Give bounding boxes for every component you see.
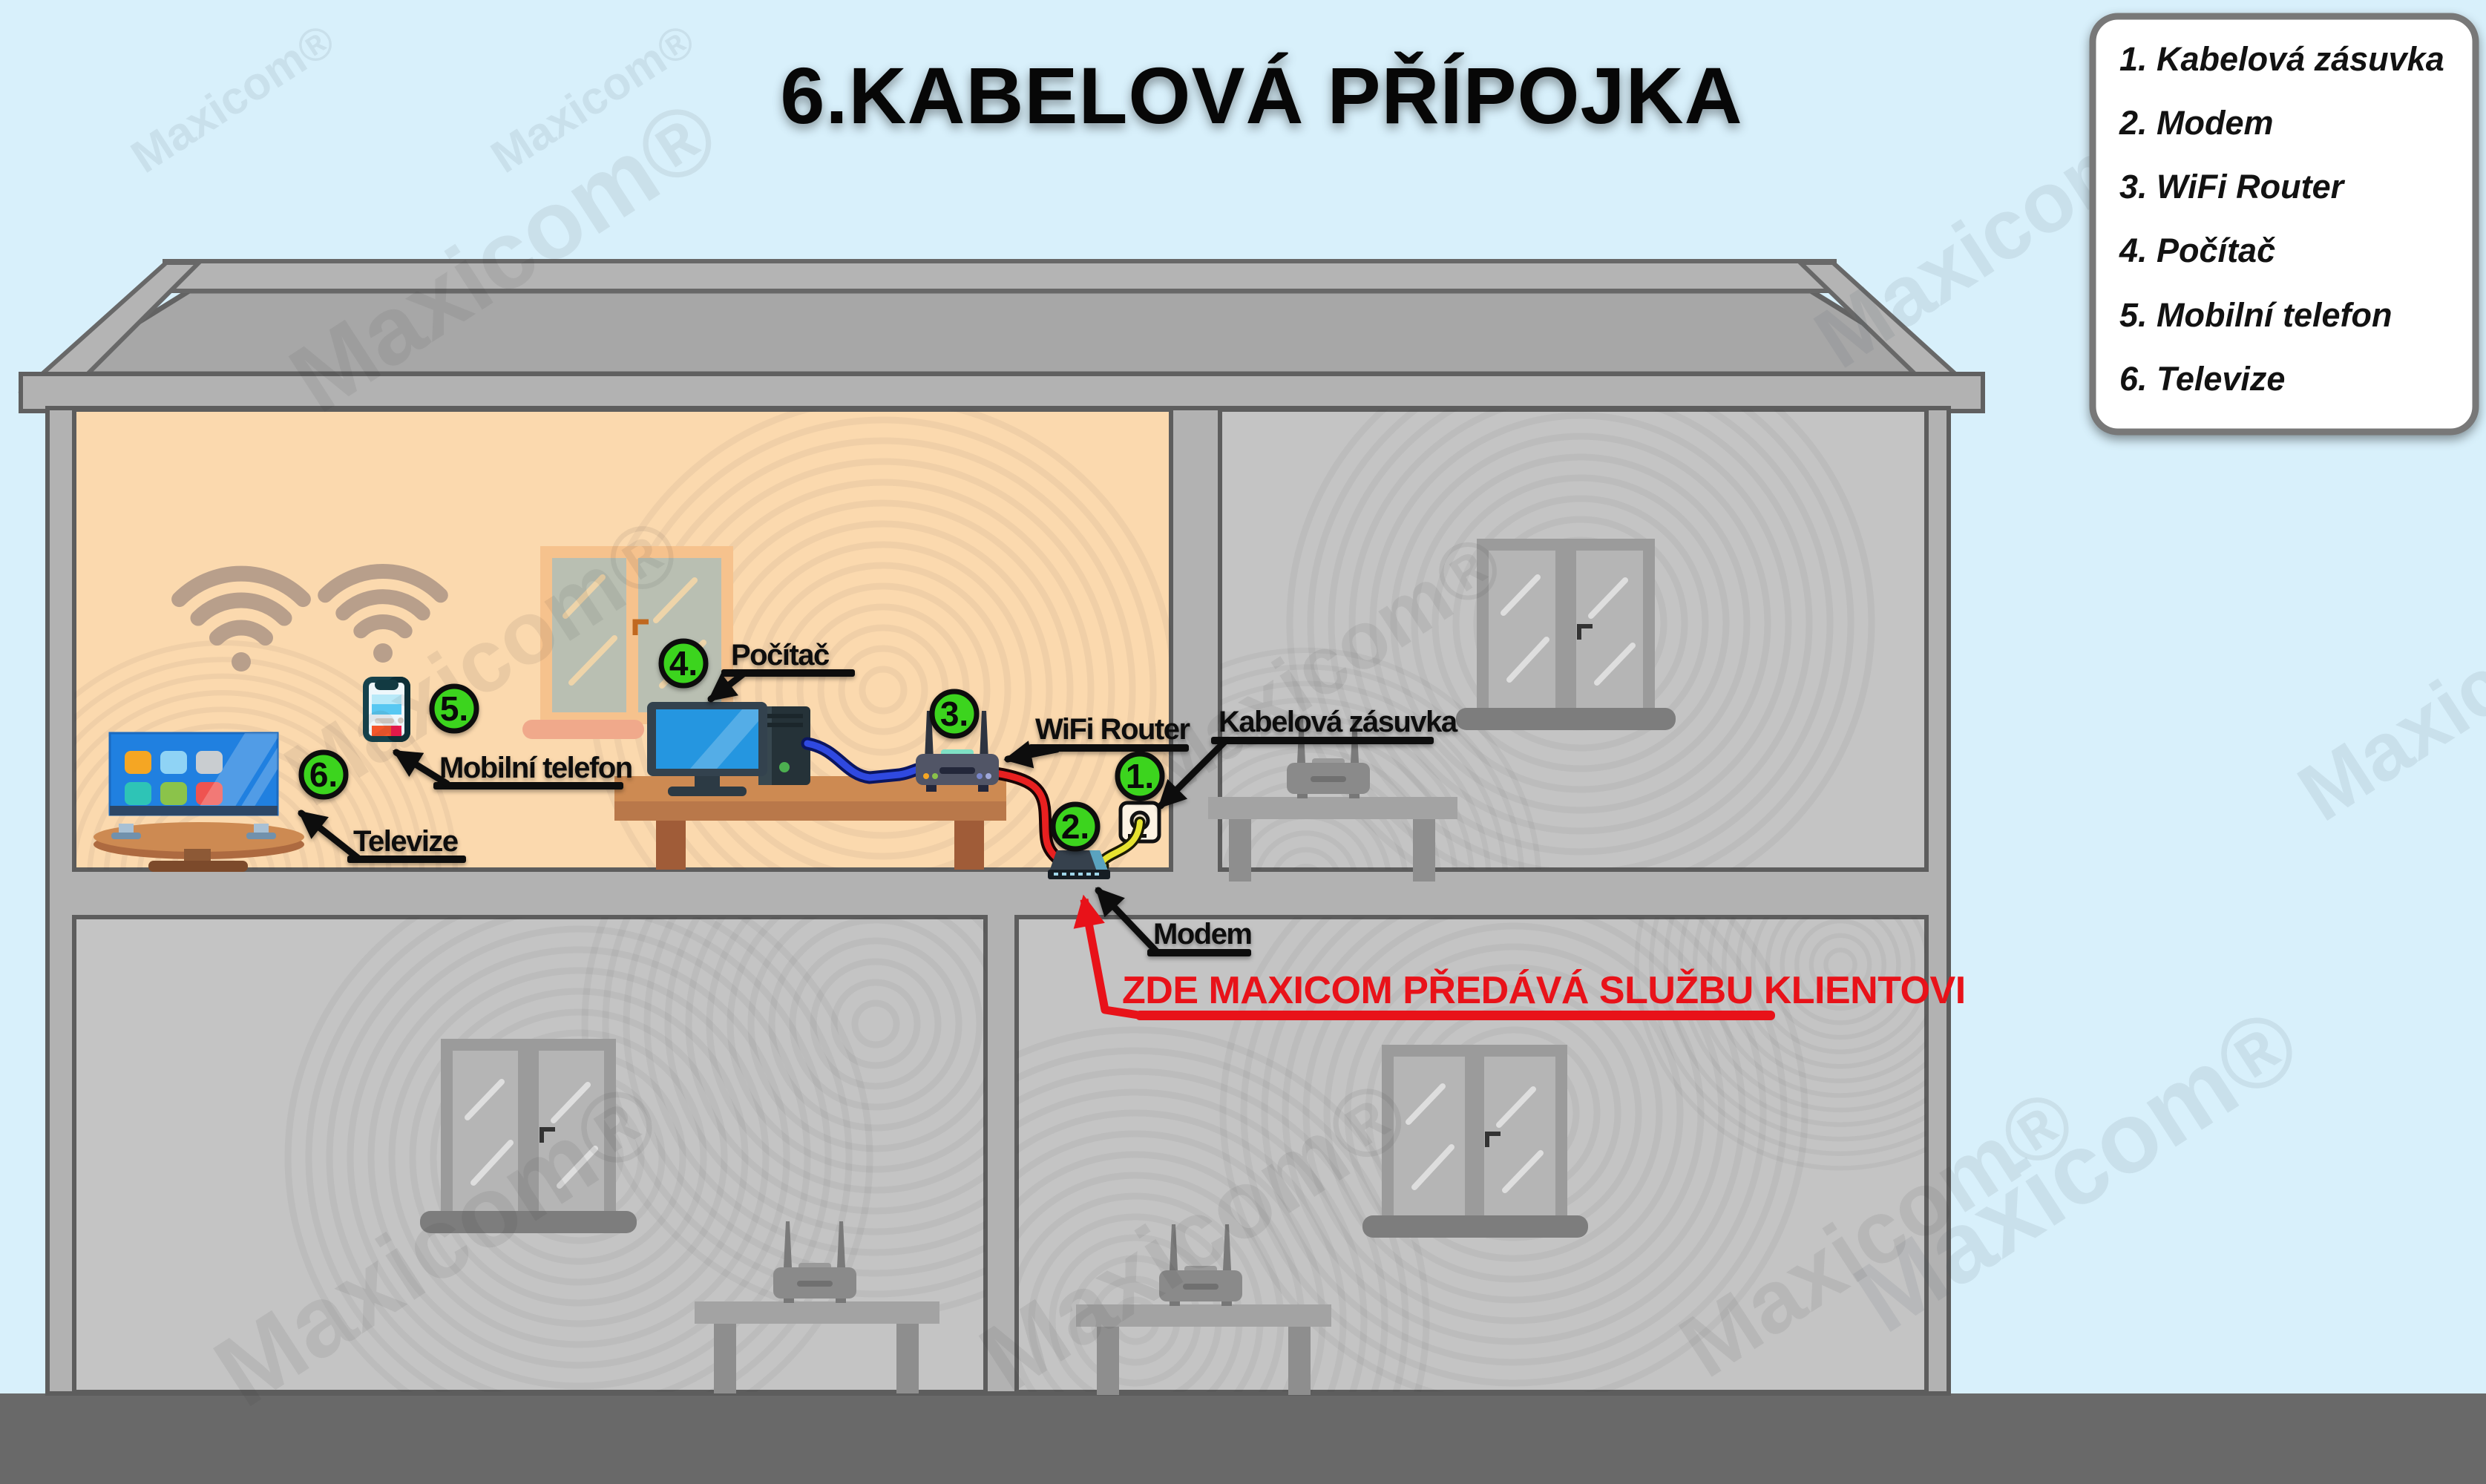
banner-underline — [1135, 1011, 1775, 1020]
marker-1: 1. — [1118, 754, 1162, 798]
marker-number: 5. — [440, 689, 468, 728]
callout-label: Počítač — [731, 639, 830, 672]
television — [94, 733, 304, 872]
callout-label: Mobilní telefon — [439, 752, 632, 784]
legend-item: 6. Televize — [2119, 360, 2285, 398]
legend-item: 2. Modem — [2119, 104, 2274, 142]
marker-4: 4. — [661, 641, 706, 686]
window-sill — [1362, 1215, 1588, 1238]
callout-label: Televize — [353, 825, 458, 858]
tv-foot — [246, 833, 276, 839]
marker-5: 5. — [432, 686, 476, 731]
marker-number: 2. — [1061, 807, 1089, 846]
marker-number: 3. — [940, 695, 968, 733]
power-led — [779, 762, 790, 772]
desk-apron — [614, 801, 1006, 821]
desk-leg — [954, 821, 984, 870]
tv-foot — [111, 833, 141, 839]
callout-label: Kabelová zásuvka — [1219, 706, 1458, 738]
marker-6: 6. — [301, 752, 346, 797]
legend: 1. Kabelová zásuvka 2. Modem 3. WiFi Rou… — [2093, 16, 2476, 432]
marker-number: 4. — [669, 644, 698, 683]
banner-text: ZDE MAXICOM PŘEDÁVÁ SLUŽBU KLIENTOVI — [1122, 968, 1966, 1012]
ground — [0, 1393, 2486, 1484]
monitor-neck — [695, 776, 720, 788]
diagram-canvas: Maxicom® Maxicom® Maxicom® Maxicom® Maxi… — [0, 0, 2486, 1484]
monitor-base — [668, 787, 747, 796]
legend-item: 3. WiFi Router — [2119, 168, 2346, 206]
marker-number: 6. — [309, 755, 338, 794]
tv-bottom-bar — [110, 806, 278, 815]
callout-label: Modem — [1153, 918, 1252, 951]
legend-item: 1. Kabelová zásuvka — [2119, 40, 2444, 78]
page-title: 6.KABELOVÁ PŘÍPOJKA — [780, 50, 1742, 140]
marker-3: 3. — [932, 692, 977, 736]
callout-label: WiFi Router — [1035, 713, 1190, 746]
desk-leg — [656, 821, 686, 870]
legend-item: 4. Počítač — [2119, 232, 2275, 269]
round-table-base — [148, 861, 248, 872]
window-sill — [522, 720, 644, 739]
marker-2: 2. — [1053, 804, 1098, 849]
marker-number: 1. — [1126, 757, 1154, 795]
legend-item: 5. Mobilní telefon — [2119, 296, 2392, 334]
modem — [1048, 850, 1110, 879]
window-sill — [1456, 708, 1676, 730]
